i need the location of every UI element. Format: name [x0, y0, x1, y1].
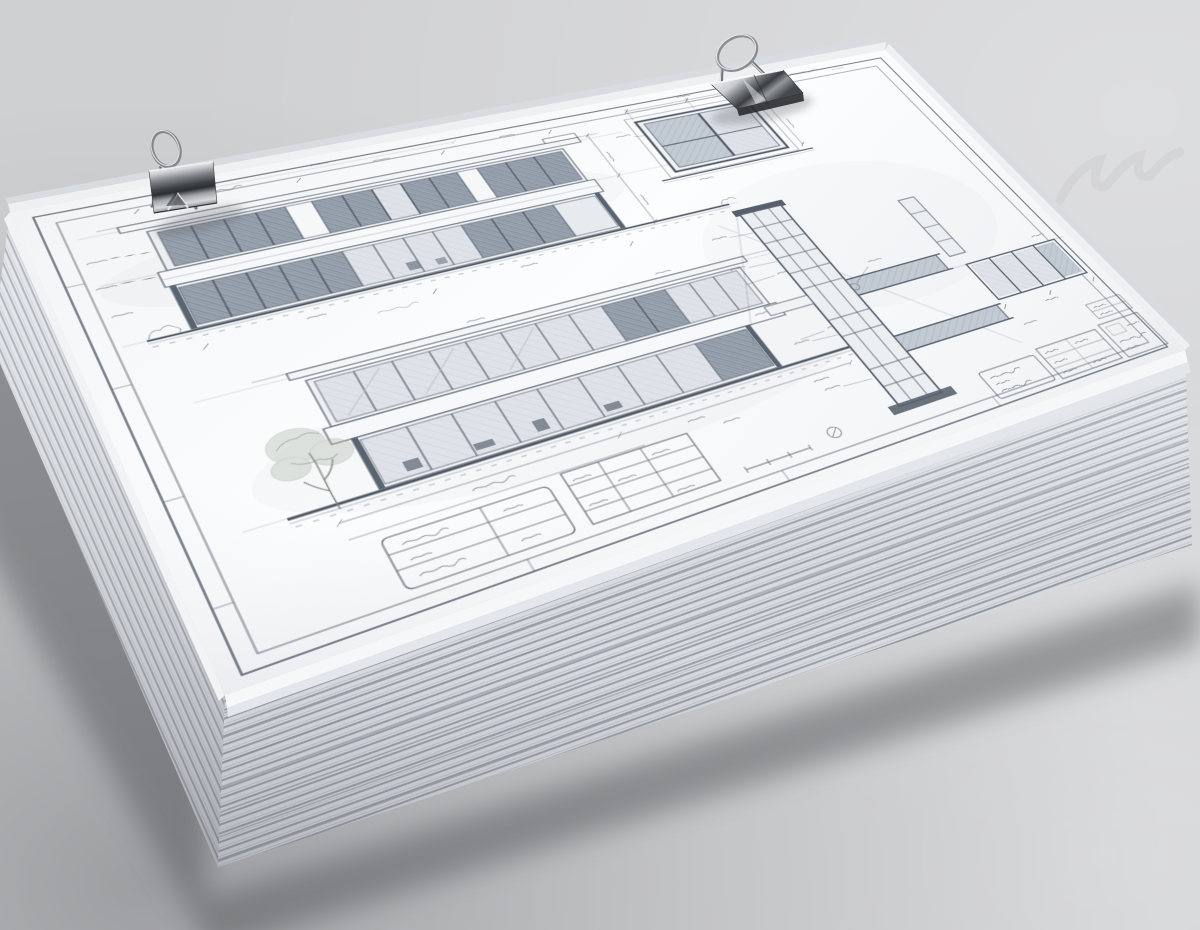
- binder-clip-top: [709, 28, 815, 131]
- photo-stack-of-blueprints: [0, 0, 1200, 930]
- binder-clips-layer: [0, 0, 1200, 930]
- binder-clip-left: [146, 126, 247, 242]
